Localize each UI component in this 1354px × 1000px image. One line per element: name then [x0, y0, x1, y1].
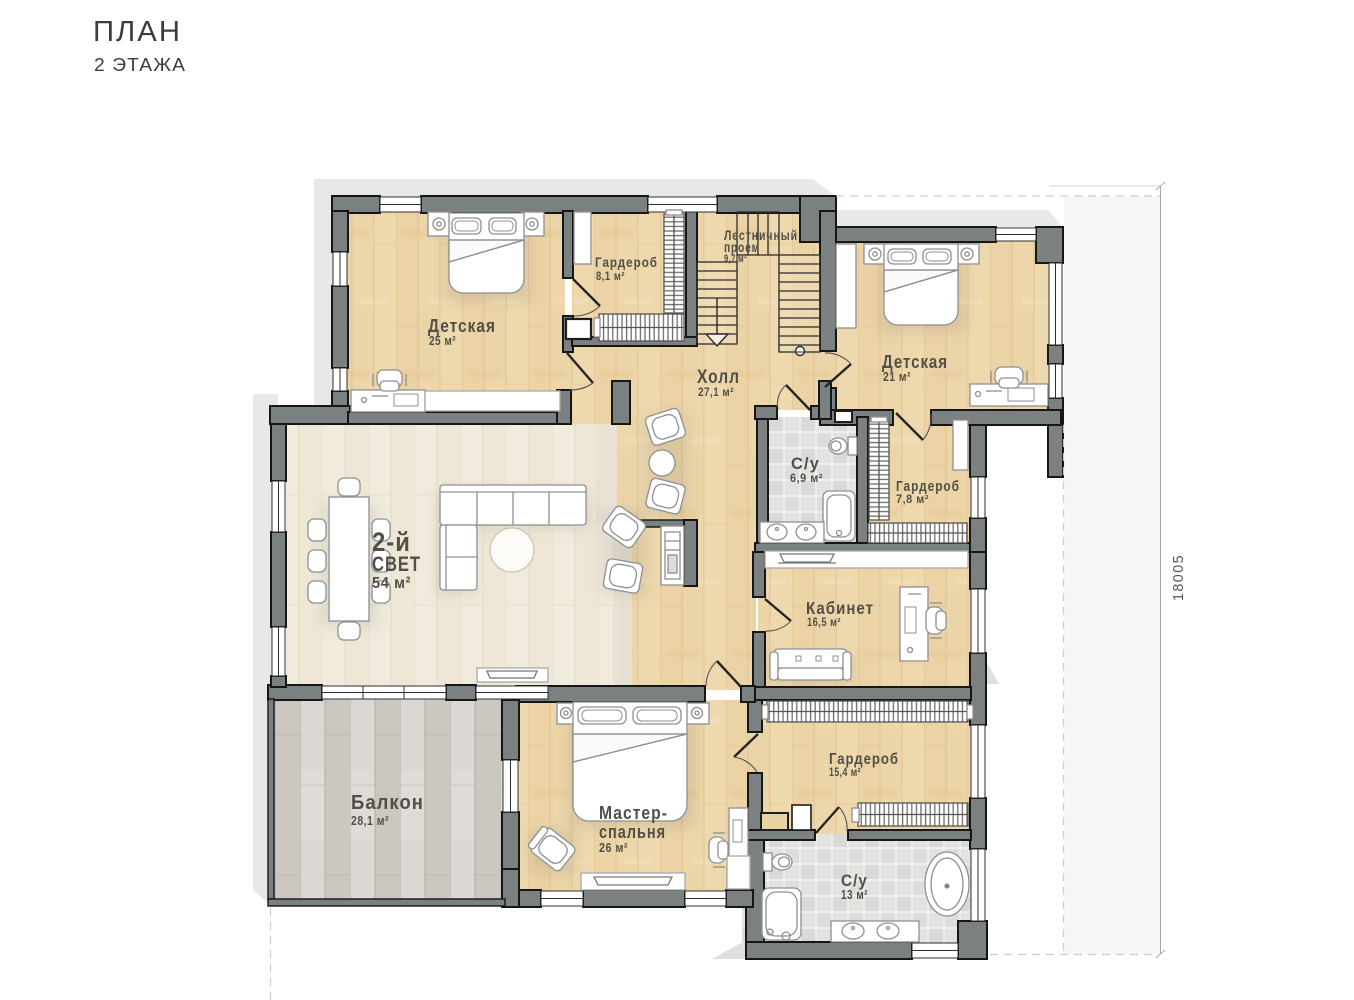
svg-text:Гардероб: Гардероб: [896, 479, 960, 495]
svg-text:спальня: спальня: [599, 821, 666, 842]
svg-text:15,4 м²: 15,4 м²: [829, 765, 861, 779]
svg-text:6,9 м²: 6,9 м²: [790, 471, 823, 485]
svg-text:7,8 м²: 7,8 м²: [896, 494, 929, 506]
svg-text:13 м²: 13 м²: [841, 888, 868, 902]
svg-text:27,1 м²: 27,1 м²: [698, 385, 734, 399]
svg-text:18005: 18005: [1170, 554, 1187, 601]
svg-text:9,7 м²: 9,7 м²: [724, 253, 747, 265]
svg-text:8,1 м²: 8,1 м²: [596, 271, 625, 283]
svg-text:ПЛАН: ПЛАН: [93, 16, 182, 48]
svg-text:16,5 м²: 16,5 м²: [807, 617, 841, 629]
svg-text:Мастер-: Мастер-: [599, 802, 668, 823]
svg-text:54 м²: 54 м²: [372, 575, 411, 592]
svg-text:25 м²: 25 м²: [429, 333, 456, 348]
svg-text:Гардероб: Гардероб: [595, 254, 658, 270]
svg-text:26 м²: 26 м²: [599, 840, 628, 855]
svg-text:СВЕТ: СВЕТ: [372, 553, 421, 576]
svg-text:Балкон: Балкон: [351, 791, 424, 814]
svg-text:28,1 м²: 28,1 м²: [351, 814, 389, 828]
svg-text:2 ЭТАЖА: 2 ЭТАЖА: [94, 55, 186, 75]
svg-text:21 м²: 21 м²: [883, 370, 911, 384]
svg-text:Детская: Детская: [882, 352, 948, 372]
svg-text:Кабинет: Кабинет: [806, 598, 874, 618]
